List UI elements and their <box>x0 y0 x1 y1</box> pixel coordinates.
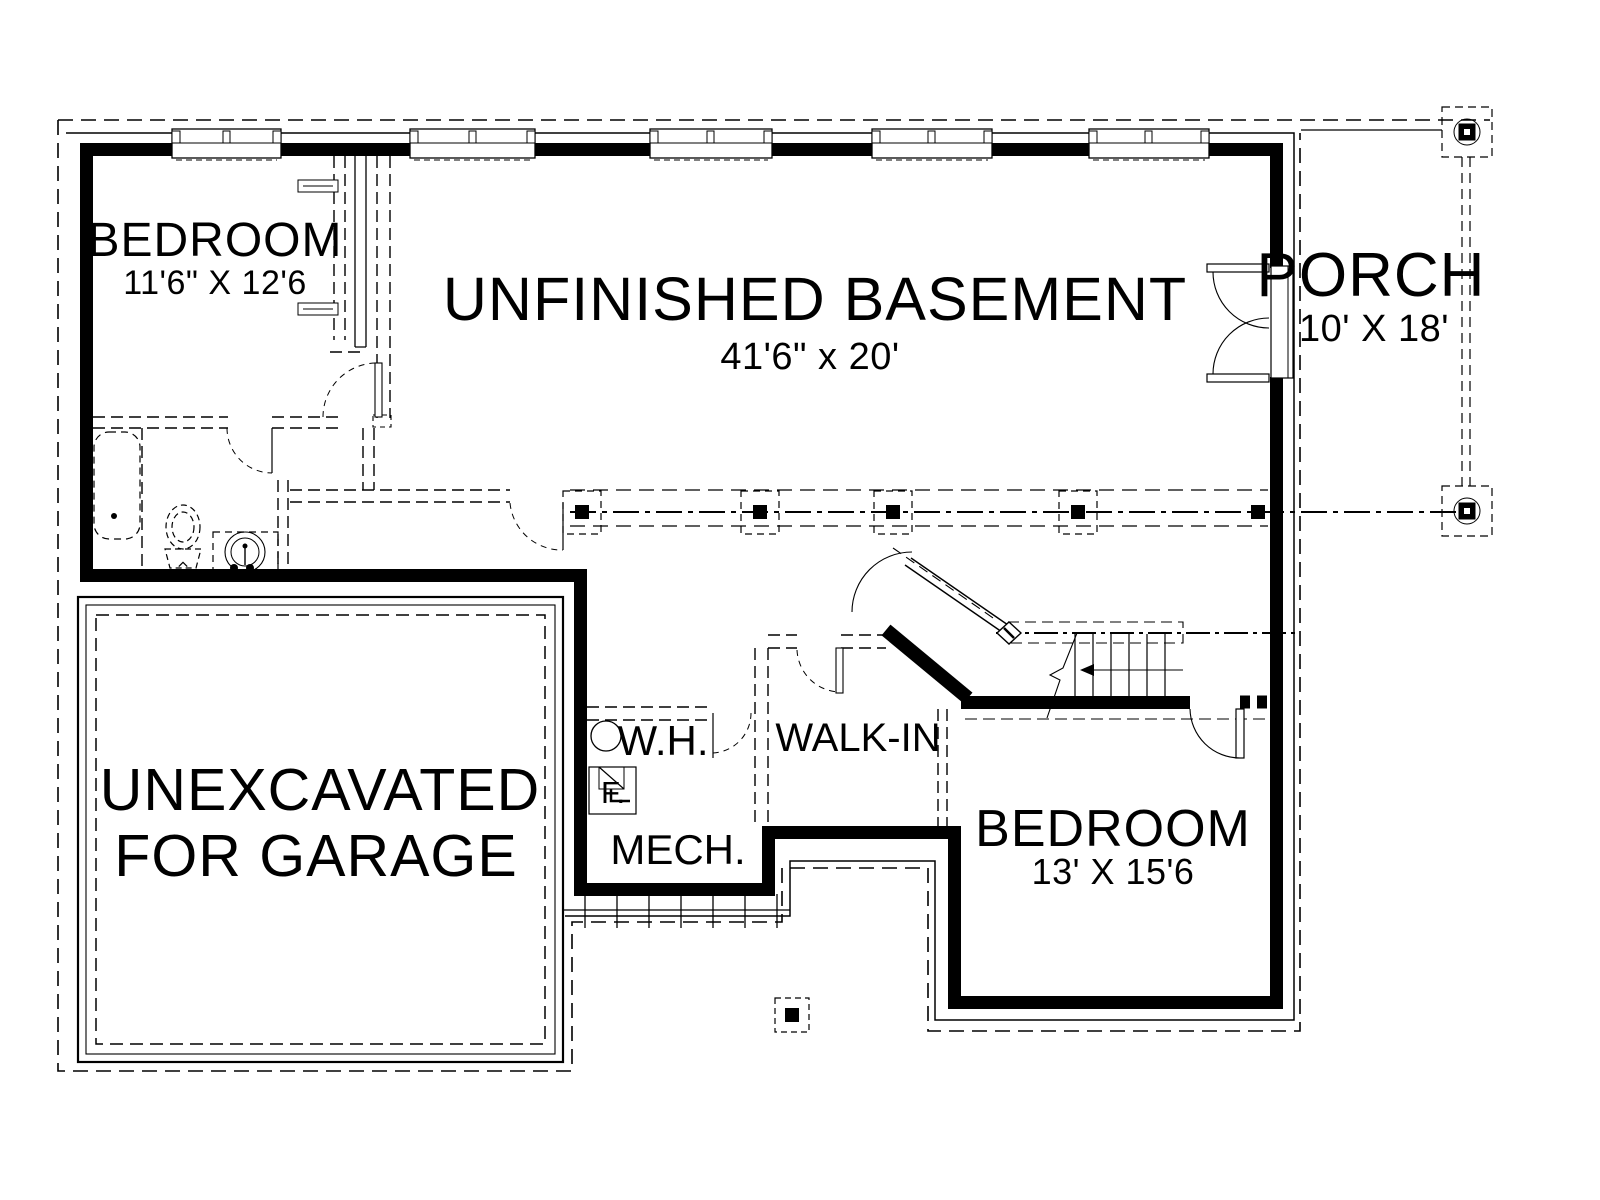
post-icon <box>1071 505 1085 519</box>
stair-direction-arrow <box>1080 664 1094 676</box>
bedroom1-dims: 11'6" X 12'6 <box>123 264 307 302</box>
garage-label-line2: FOR GARAGE <box>114 823 517 889</box>
post-icon <box>886 505 900 519</box>
floor-plan-page: BEDROOM 11'6" X 12'6 UNFINISHED BASEMENT… <box>0 0 1600 1200</box>
basement-label: UNFINISHED BASEMENT <box>443 265 1187 333</box>
sink-vanity-icon <box>213 532 278 572</box>
garage-label-line1: UNEXCAVATED <box>100 757 540 823</box>
furnace-label: F. <box>601 775 625 810</box>
stair-walls <box>886 630 1270 702</box>
deck-column <box>775 998 809 1032</box>
post-icon <box>785 1008 799 1022</box>
window-icon <box>650 129 772 160</box>
window-icon <box>1089 129 1209 160</box>
window-icon <box>410 129 535 160</box>
door-leaf-icon <box>1207 374 1269 382</box>
bedroom1-label: BEDROOM <box>87 214 342 267</box>
post-icon <box>753 505 767 519</box>
bath-fixtures <box>94 432 278 575</box>
bathtub-icon <box>94 432 140 539</box>
bedroom2-dims: 13' X 15'6 <box>1032 851 1195 892</box>
water-heater-label: W.H. <box>618 717 709 764</box>
post-icon <box>1251 505 1265 519</box>
basement-dims: 41'6" x 20' <box>720 336 899 378</box>
window-icon <box>172 129 281 160</box>
water-heater-icon <box>591 721 621 751</box>
mech-label: MECH. <box>610 826 745 873</box>
bedroom2-label: BEDROOM <box>975 800 1251 858</box>
porch-column-icon <box>1442 107 1492 157</box>
window-icon <box>872 129 992 160</box>
porch-label: PORCH <box>1257 241 1486 310</box>
chase-lines <box>355 156 366 347</box>
post-icon <box>575 505 589 519</box>
beam-line <box>570 490 1460 526</box>
toilet-icon <box>165 505 201 575</box>
porch-dims: 10' X 18' <box>1299 308 1449 350</box>
floor-plan-drawing: BEDROOM 11'6" X 12'6 UNFINISHED BASEMENT… <box>0 0 1600 1200</box>
walkin-label: WALK-IN <box>775 716 940 760</box>
footing-hatch <box>563 894 790 928</box>
